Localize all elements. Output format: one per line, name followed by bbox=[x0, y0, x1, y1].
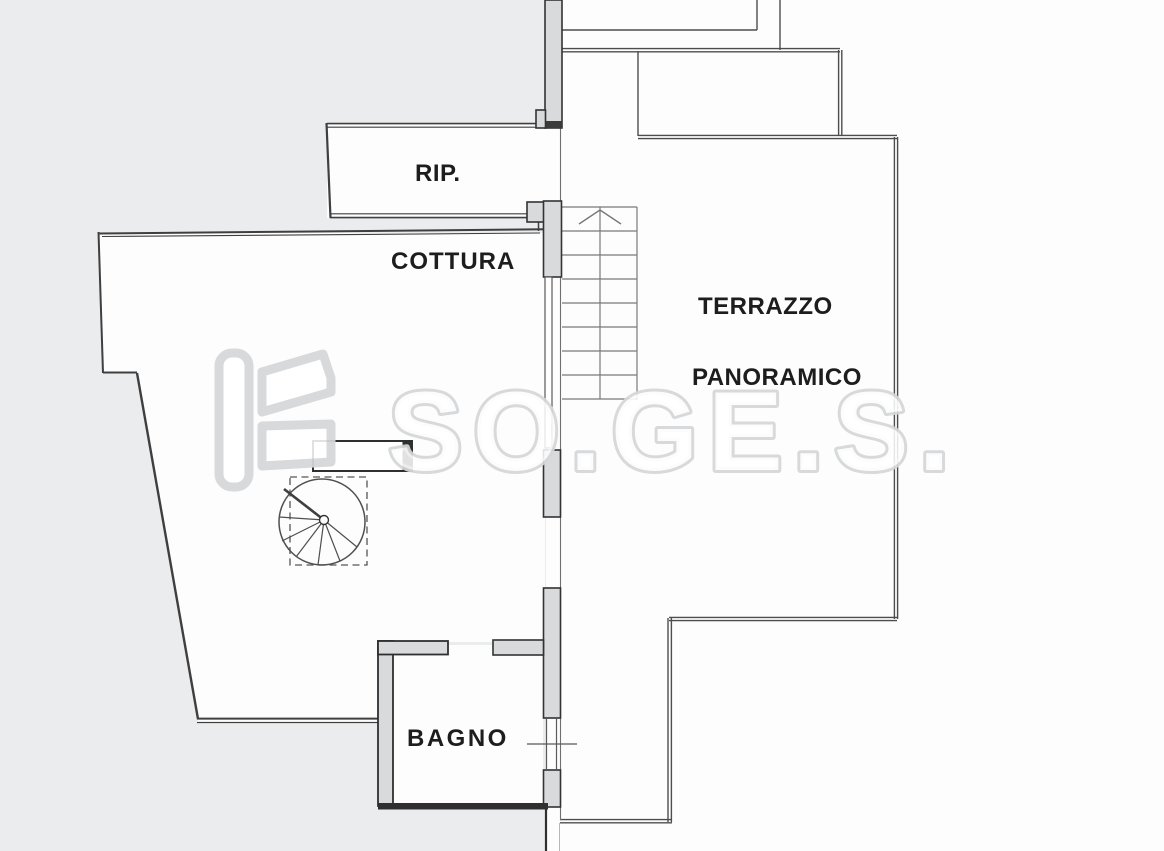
room-label-rip: RIP. bbox=[415, 162, 461, 186]
room-label-cottura: COTTURA bbox=[391, 250, 515, 274]
room-label-panoramico: PANORAMICO bbox=[692, 366, 862, 390]
room-label-terrazzo: TERRAZZO bbox=[698, 295, 833, 319]
kitchen-counter bbox=[313, 441, 412, 471]
floor-plan-drawing bbox=[0, 0, 1164, 851]
floor-plan-page: SO.GE.S. RIP. COTTURA TERRAZZO PANORAMIC… bbox=[0, 0, 1164, 851]
room-label-bagno: BAGNO bbox=[407, 727, 509, 751]
